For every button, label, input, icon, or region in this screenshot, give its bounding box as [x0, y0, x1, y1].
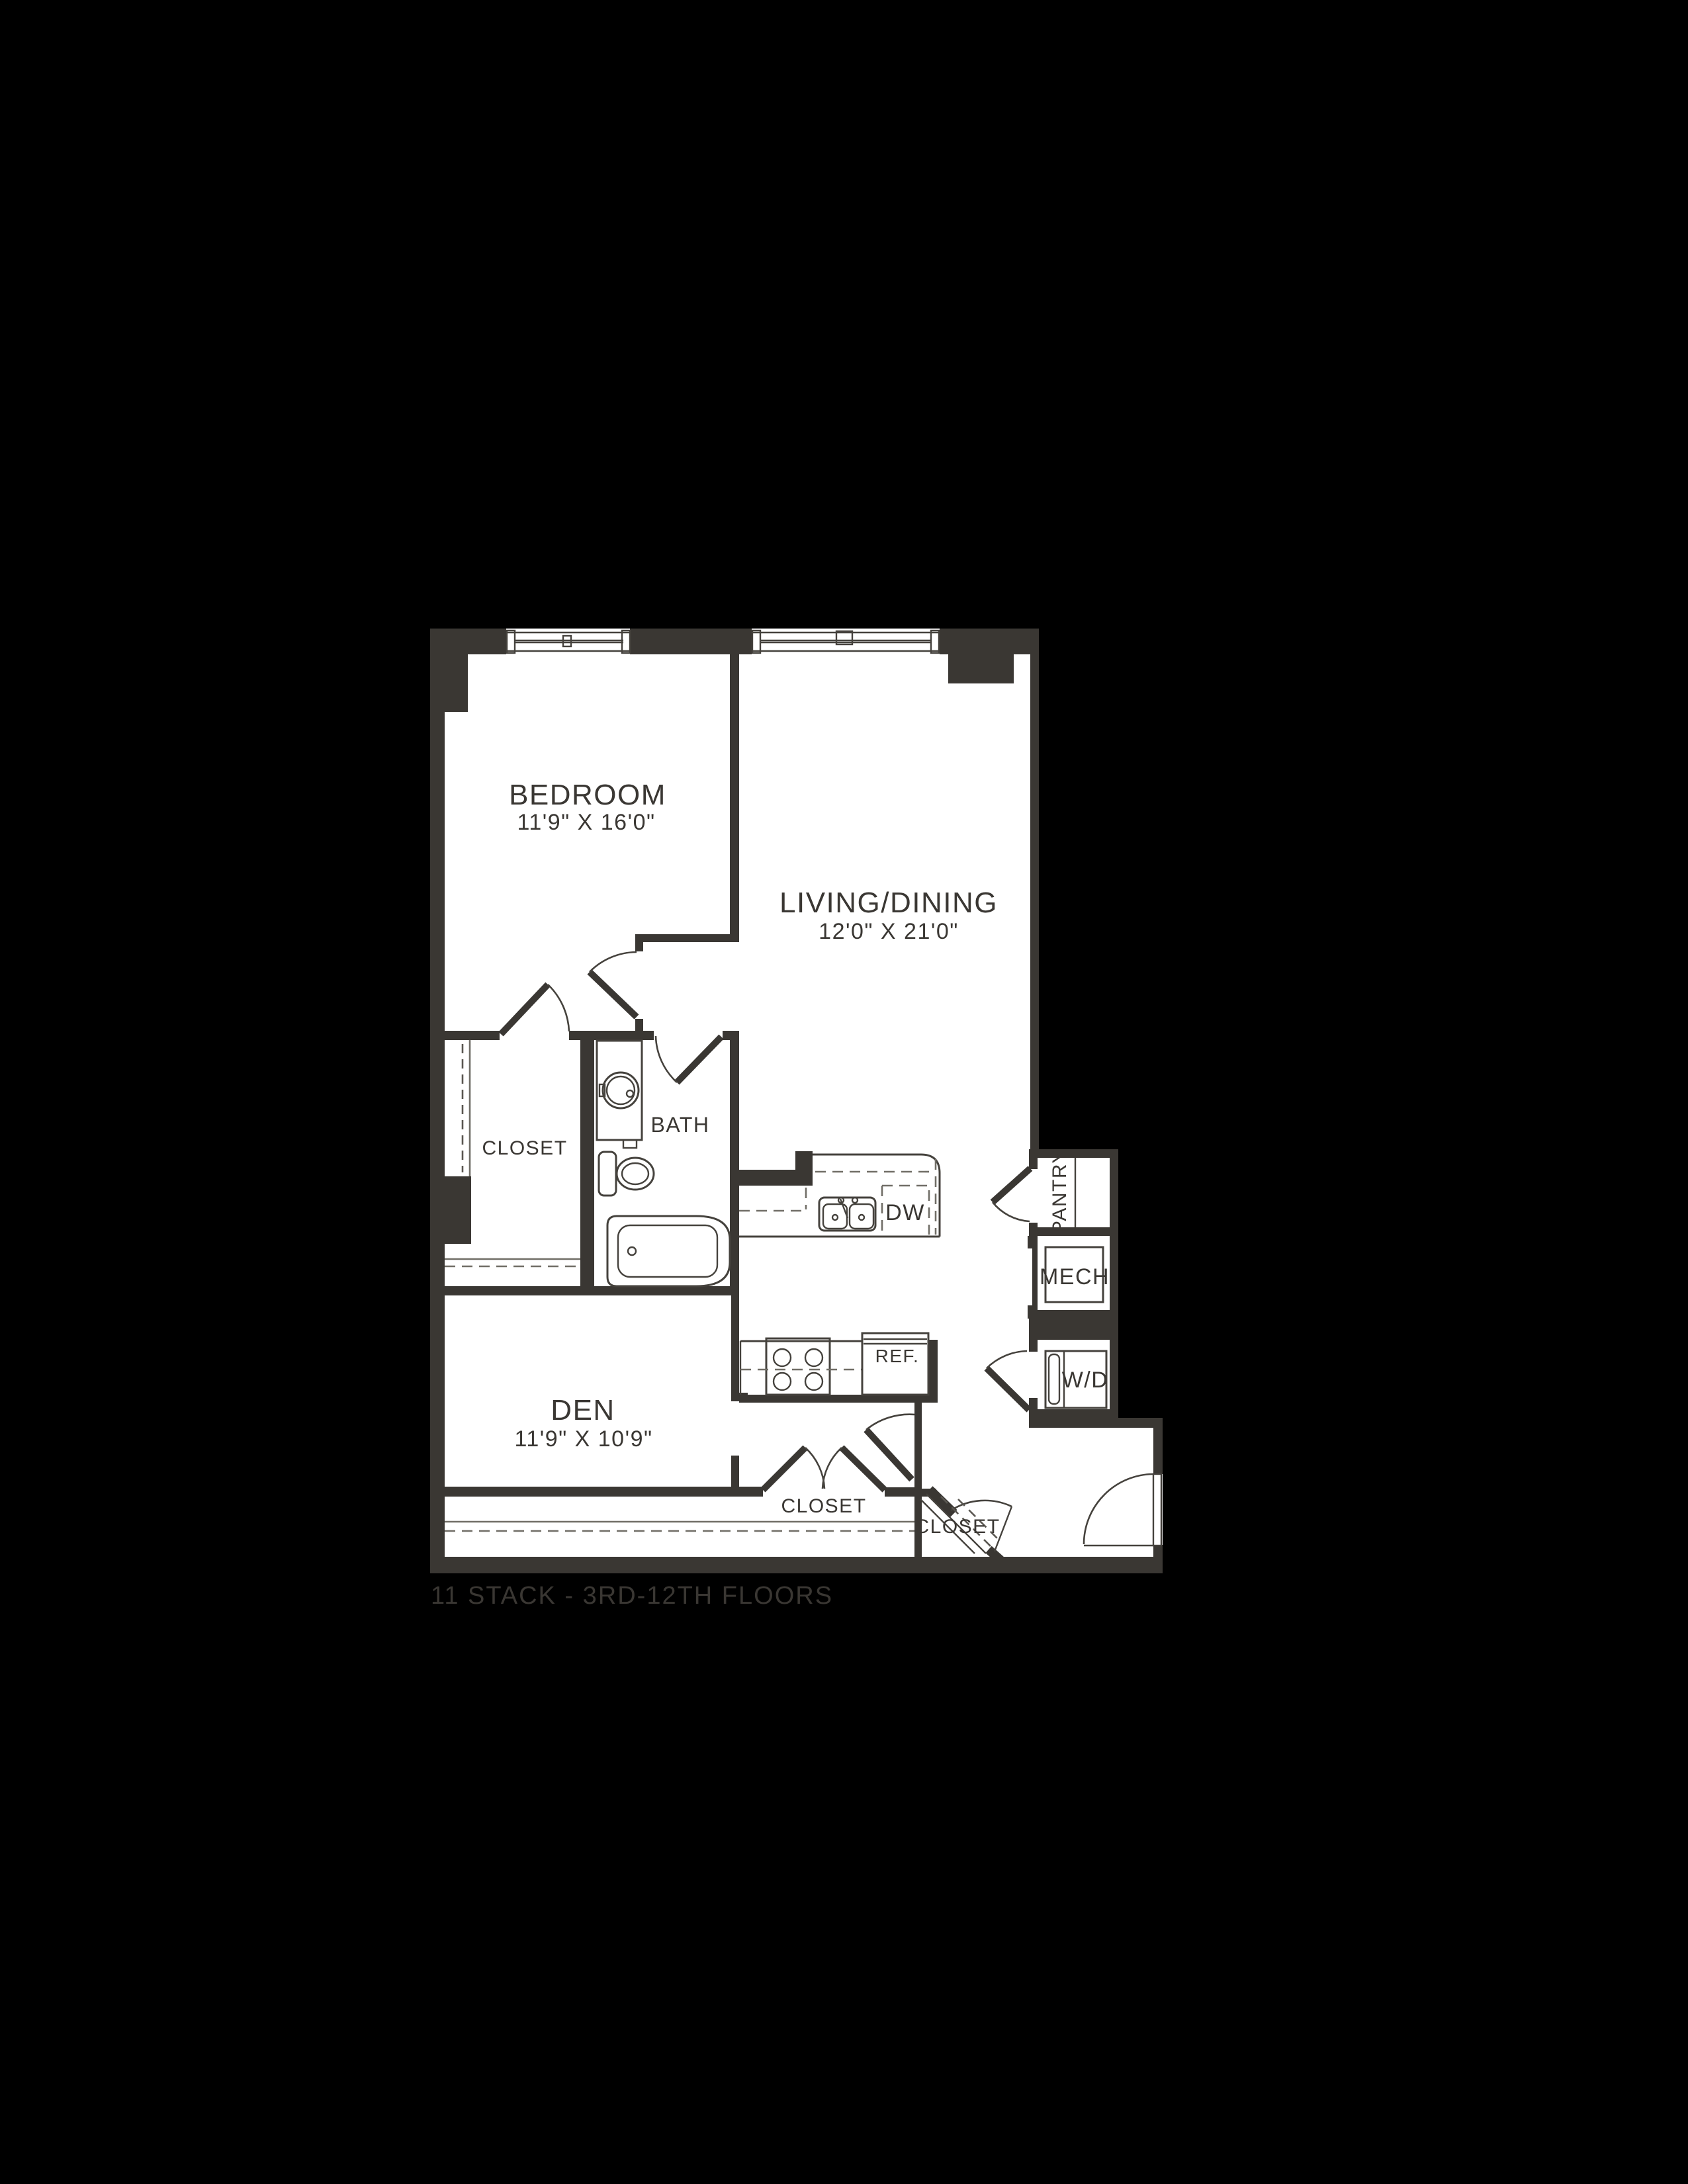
mech-label: MECH — [1040, 1264, 1110, 1289]
hall-closet-label: CLOSET — [781, 1495, 866, 1517]
living-dining-label: LIVING/DINING — [779, 887, 998, 919]
floor-plan: BEDROOM 11'9" X 16'0" LIVING/DINING 12'0… — [0, 0, 1688, 2184]
living-dining-dims: 12'0" X 21'0" — [819, 919, 959, 944]
refrigerator-label: REF. — [875, 1346, 920, 1366]
plan-caption: 11 STACK - 3RD-12TH FLOORS — [431, 1582, 833, 1610]
bedroom-closet-label: CLOSET — [482, 1137, 567, 1159]
den-dims: 11'9" X 10'9" — [514, 1426, 652, 1452]
entry-closet-label: CLOSET — [914, 1516, 1000, 1538]
bedroom-label: BEDROOM — [509, 779, 666, 811]
den-label: DEN — [551, 1394, 615, 1426]
pantry-label: PANTRY — [1049, 1149, 1071, 1234]
page-background: BEDROOM 11'9" X 16'0" LIVING/DINING 12'0… — [0, 0, 1688, 2184]
dishwasher-label: DW — [885, 1200, 925, 1225]
bedroom-dims: 11'9" X 16'0" — [517, 810, 655, 835]
washer-dryer-label: W/D — [1062, 1368, 1109, 1393]
bath-label: BATH — [651, 1113, 710, 1137]
